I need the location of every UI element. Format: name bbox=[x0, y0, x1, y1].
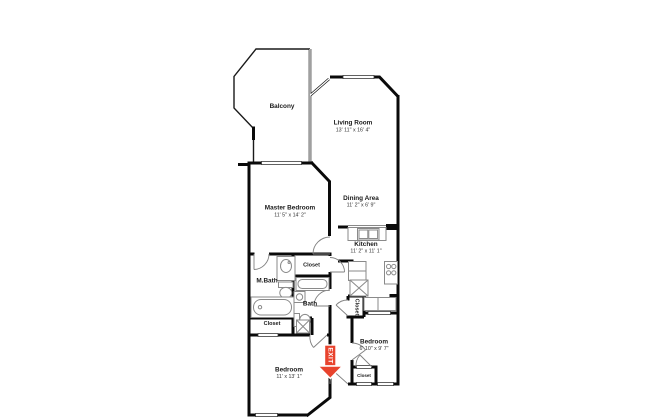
closet-label-kitchen: Closet bbox=[353, 299, 359, 316]
bath-tub bbox=[298, 280, 327, 289]
stove-burner-2 bbox=[392, 264, 396, 268]
slider-closet-bedroom-small bbox=[357, 366, 372, 369]
closet-label-hall: Closet bbox=[303, 263, 320, 269]
kitchen-counter-bottom bbox=[364, 298, 396, 311]
window-bedroom-small-2 bbox=[357, 382, 372, 385]
mbath-toilet-tank bbox=[279, 282, 294, 288]
window-bedroom-small-1 bbox=[378, 382, 394, 385]
kitchen-sink-basin-left bbox=[359, 230, 368, 239]
window-bedroom-small-top bbox=[368, 311, 391, 314]
floorplan-drawing: EXIT Balcony Living Room 13' 11" x 16' 4… bbox=[0, 0, 650, 420]
door-master-bath bbox=[254, 254, 269, 270]
floorplan-canvas: EXIT Balcony Living Room 13' 11" x 16' 4… bbox=[0, 0, 650, 420]
exit-arrow-head bbox=[318, 366, 343, 379]
room-dims-bedroom-large: 11' x 13' 1" bbox=[276, 374, 301, 380]
room-label-master-bedroom: Master Bedroom bbox=[265, 205, 316, 212]
exit-label: EXIT bbox=[327, 347, 334, 363]
room-label-kitchen: Kitchen bbox=[354, 241, 378, 248]
room-dims-bedroom-small: 6' 10" x 9' 7" bbox=[359, 346, 388, 352]
room-label-bath: Bath bbox=[303, 301, 317, 308]
room-label-dining-area: Dining Area bbox=[343, 195, 379, 202]
exit-arrow: EXIT bbox=[318, 345, 343, 379]
stove-burner-4 bbox=[392, 271, 396, 275]
closet-label-mbath: Closet bbox=[264, 321, 281, 327]
room-dims-living-room: 13' 11" x 16' 4" bbox=[336, 128, 371, 134]
bath-sink bbox=[296, 294, 302, 300]
room-labels: Balcony Living Room 13' 11" x 16' 4" Mas… bbox=[256, 103, 388, 380]
room-label-bedroom-small: Bedroom bbox=[360, 339, 388, 346]
window-living-top bbox=[343, 75, 374, 78]
room-label-bedroom-large: Bedroom bbox=[275, 367, 303, 374]
wall-bedroom-large bbox=[249, 305, 330, 416]
stove-burner-1 bbox=[387, 264, 391, 268]
room-dims-kitchen: 11' 2" x 11' 1" bbox=[350, 249, 381, 255]
slider-closet-bedroom-large bbox=[258, 334, 278, 337]
room-dims-master-bedroom: 11' 5" x 14' 2" bbox=[274, 213, 306, 219]
window-master-slider bbox=[262, 161, 302, 164]
stove-burner-3 bbox=[387, 271, 391, 275]
door-master-bedroom bbox=[313, 237, 330, 254]
window-bedroom-large bbox=[256, 413, 278, 416]
balcony-window-wall bbox=[310, 49, 329, 162]
kitchen-sink-basin-right bbox=[369, 230, 378, 239]
room-label-balcony: Balcony bbox=[270, 103, 295, 110]
room-dims-dining-area: 11' 2" x 6' 9" bbox=[347, 203, 376, 209]
mbath-tub-drain bbox=[258, 306, 261, 309]
master-bath-fixtures bbox=[251, 257, 295, 318]
closet-label-bedroom-small: Closet bbox=[357, 373, 371, 378]
room-label-living-room: Living Room bbox=[334, 120, 373, 127]
room-label-master-bath: M.Bath bbox=[256, 278, 277, 285]
utility-fixture bbox=[297, 320, 310, 333]
door-closet-kitchen bbox=[336, 300, 348, 316]
mbath-faucet bbox=[288, 262, 290, 264]
wall-stub-dining bbox=[386, 224, 398, 230]
